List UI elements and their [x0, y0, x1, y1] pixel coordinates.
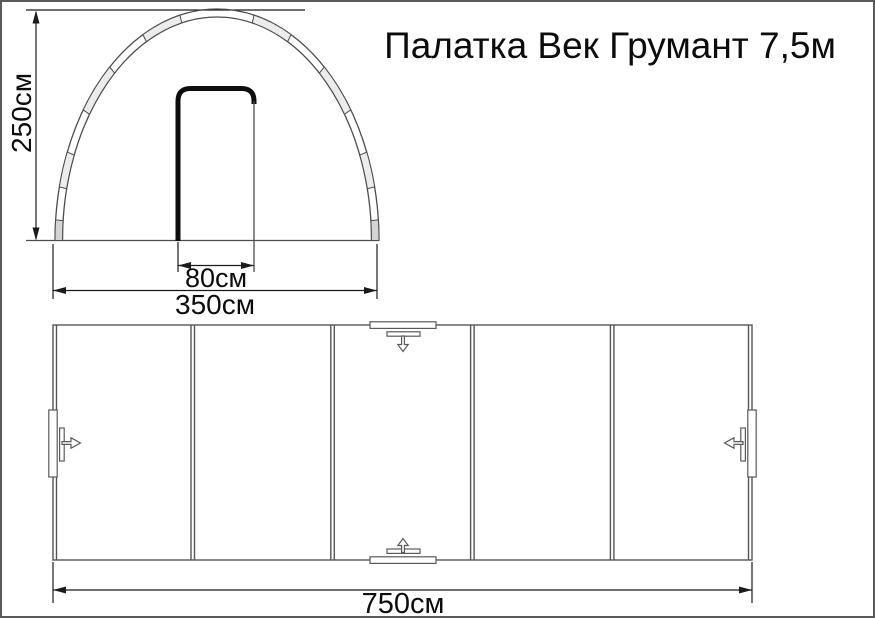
- dimension-height-250: 250см: [6, 11, 40, 241]
- plan-top-entrance-symbol: [370, 322, 436, 352]
- arch-outer-line: [55, 9, 379, 241]
- door-opening: [178, 89, 254, 242]
- arch-sleeve-left-lower: [59, 152, 74, 189]
- arrowhead-down-icon: [33, 228, 40, 241]
- arch-foot-right: [371, 220, 379, 241]
- entrance-bar: [748, 410, 756, 477]
- entrance-bar: [49, 410, 57, 477]
- plan-bottom-entrance-symbol: [370, 539, 436, 564]
- tent-technical-drawing: 250см 80см 350см Палатка Век Грумант 7,5…: [2, 2, 873, 616]
- plan-outline: [53, 325, 752, 560]
- plan-right-entrance-symbol: [725, 410, 757, 477]
- entrance-bar: [370, 322, 436, 329]
- arch-sleeve-top-right: [252, 15, 291, 42]
- arch-sleeve-left-upper: [83, 67, 114, 114]
- entrance-arrow-down-icon: [398, 336, 408, 352]
- dim-label-750: 750см: [362, 588, 445, 616]
- entrance-bar: [370, 557, 436, 564]
- plan-left-entrance-symbol: [49, 410, 81, 477]
- dim-label-350: 350см: [175, 289, 255, 320]
- front-view: 250см 80см 350см: [6, 9, 379, 320]
- plan-divider-1: [191, 325, 195, 560]
- plan-divider-4: [610, 325, 614, 560]
- arch-sleeve-right-lower: [360, 152, 375, 189]
- dimension-length-750: 750см: [53, 562, 752, 616]
- arrowhead-right-icon: [739, 587, 752, 594]
- arch-sleeve-top-left: [143, 15, 182, 42]
- plan-view: 750см: [49, 322, 756, 616]
- dim-label-250: 250см: [6, 73, 37, 153]
- plan-divider-2: [331, 325, 335, 560]
- arrowhead-left-icon: [53, 287, 66, 294]
- arrowhead-right-icon: [364, 287, 377, 294]
- diagram-title: Палатка Век Грумант 7,5м: [384, 25, 836, 66]
- arch-inner-line: [63, 17, 372, 241]
- arch-foot-left: [55, 220, 63, 241]
- arch-sleeve-right-upper: [319, 67, 350, 114]
- arrowhead-left-icon: [53, 587, 66, 594]
- arrowhead-up-icon: [33, 11, 40, 24]
- plan-divider-3: [471, 325, 475, 560]
- tent-diagram-page: 250см 80см 350см Палатка Век Грумант 7,5…: [0, 0, 875, 618]
